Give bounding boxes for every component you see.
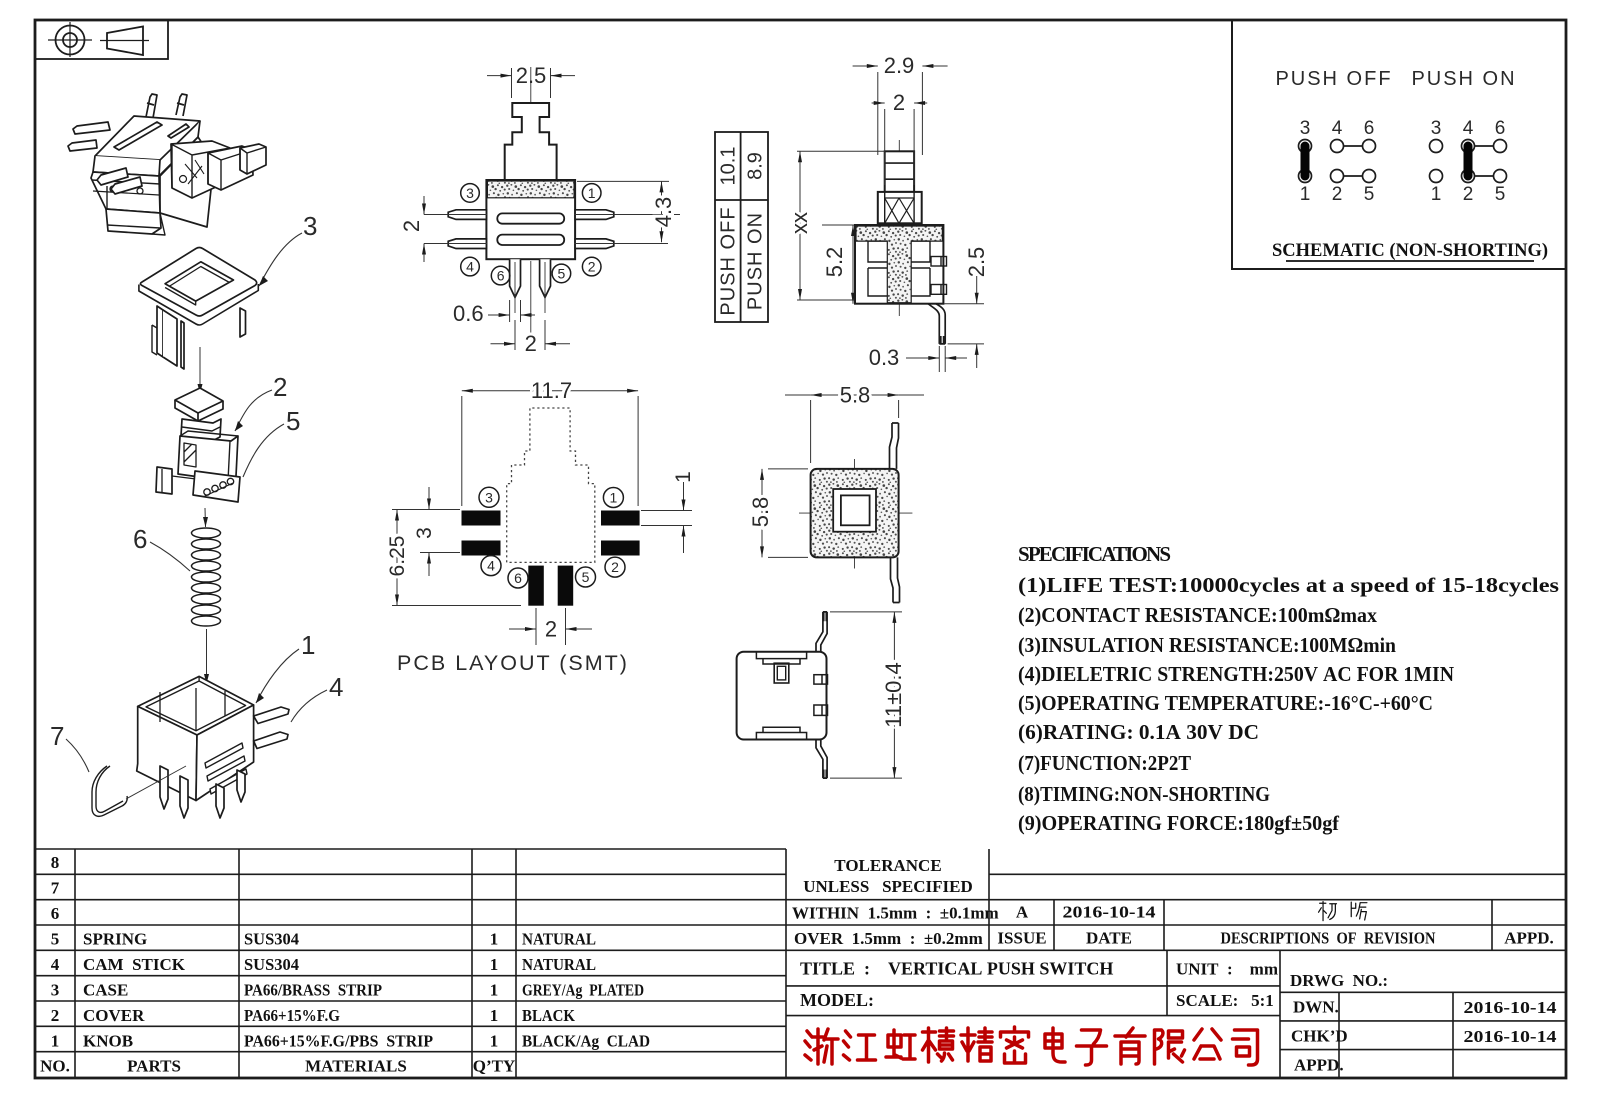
svg-text:GREY/Ag PLATED: GREY/Ag PLATED: [522, 981, 644, 1000]
svg-text:(1)LIFE TEST:10000cycles at a: (1)LIFE TEST:10000cycles at a speed of 1…: [1018, 573, 1559, 597]
svg-text:3: 3: [413, 527, 436, 539]
svg-text:2: 2: [399, 220, 424, 232]
svg-text:KNOB: KNOB: [83, 1032, 133, 1051]
svg-text:6: 6: [497, 268, 505, 284]
svg-text:BLACK/Ag CLAD: BLACK/Ag CLAD: [522, 1032, 650, 1051]
svg-text:7: 7: [50, 721, 64, 751]
svg-text:PUSH ON: PUSH ON: [1411, 68, 1516, 90]
svg-text:3: 3: [466, 185, 474, 201]
svg-text:2: 2: [1463, 184, 1474, 205]
svg-text:(6)RATING: 0.1A 30V DC: (6)RATING: 0.1A 30V DC: [1018, 720, 1259, 744]
svg-text:DRWG NO.:: DRWG NO.:: [1290, 971, 1388, 990]
svg-text:CAM STICK: CAM STICK: [83, 955, 186, 974]
svg-text:PCB LAYOUT (SMT): PCB LAYOUT (SMT): [397, 651, 629, 675]
svg-text:5.8: 5.8: [748, 497, 773, 528]
svg-text:4.3: 4.3: [651, 197, 676, 228]
svg-text:1: 1: [610, 490, 618, 506]
svg-text:SUS304: SUS304: [244, 955, 299, 974]
svg-text:PUSH OFF: PUSH OFF: [718, 206, 740, 315]
svg-text:4: 4: [1332, 118, 1343, 139]
svg-text:1: 1: [490, 1006, 499, 1025]
svg-text:APPD.: APPD.: [1294, 1056, 1344, 1075]
svg-text:2: 2: [893, 90, 905, 115]
svg-text:(3)INSULATION RESISTANCE:100MΩ: (3)INSULATION RESISTANCE:100MΩmin: [1018, 633, 1396, 657]
svg-text:SPECIFICATIONS: SPECIFICATIONS: [1018, 542, 1171, 566]
svg-text:2: 2: [1332, 184, 1343, 205]
svg-text:0.6: 0.6: [453, 301, 484, 326]
svg-text:2: 2: [588, 259, 596, 275]
svg-text:2: 2: [525, 331, 537, 356]
svg-text:ISSUE: ISSUE: [997, 929, 1046, 948]
svg-text:1: 1: [490, 955, 499, 974]
svg-text:xx: xx: [787, 212, 812, 234]
svg-text:2016-10-14: 2016-10-14: [1464, 1027, 1558, 1046]
svg-text:4: 4: [487, 558, 495, 574]
svg-text:2.9: 2.9: [884, 53, 915, 78]
svg-text:2.5: 2.5: [964, 247, 989, 278]
svg-text:SPRING: SPRING: [83, 930, 147, 949]
svg-text:CHK’D: CHK’D: [1291, 1027, 1348, 1046]
svg-text:(7)FUNCTION:2P2T: (7)FUNCTION:2P2T: [1018, 751, 1191, 775]
svg-text:1: 1: [490, 981, 499, 1000]
svg-text:NATURAL: NATURAL: [522, 955, 596, 974]
svg-text:TITLE : VERTICAL PUSH SWIT: TITLE : VERTICAL PUSH SWITCH: [800, 959, 1113, 979]
svg-text:3: 3: [303, 211, 317, 241]
svg-text:SCHEMATIC (NON-SHORTING): SCHEMATIC (NON-SHORTING): [1272, 241, 1548, 261]
svg-text:1: 1: [1300, 184, 1311, 205]
svg-text:3: 3: [1300, 118, 1311, 139]
svg-text:6: 6: [514, 570, 522, 586]
svg-text:APPD.: APPD.: [1504, 929, 1554, 948]
svg-text:1: 1: [672, 471, 695, 483]
svg-text:SCALE: 5:1: SCALE: 5:1: [1176, 991, 1274, 1010]
svg-text:4: 4: [51, 955, 60, 974]
svg-text:2: 2: [51, 1006, 60, 1025]
svg-text:PA66+15%F.G/PBS STRIP: PA66+15%F.G/PBS STRIP: [244, 1032, 433, 1051]
svg-text:DATE: DATE: [1086, 929, 1132, 948]
svg-text:2.5: 2.5: [516, 63, 547, 88]
svg-text:6: 6: [1495, 118, 1506, 139]
svg-text:(8)TIMING:NON-SHORTING: (8)TIMING:NON-SHORTING: [1018, 782, 1270, 806]
svg-text:0.3: 0.3: [869, 345, 900, 370]
svg-text:CASE: CASE: [83, 981, 128, 1000]
svg-text:WITHIN 1.5mm : ±0.1mm: WITHIN 1.5mm : ±0.1mm: [792, 904, 999, 923]
svg-text:11±0.4: 11±0.4: [881, 662, 906, 728]
svg-text:2016-10-14: 2016-10-14: [1063, 903, 1157, 922]
svg-text:1: 1: [490, 930, 499, 949]
svg-text:(2)CONTACT RESISTANCE:100mΩmax: (2)CONTACT RESISTANCE:100mΩmax: [1018, 603, 1377, 627]
svg-text:6: 6: [51, 904, 60, 923]
svg-text:8: 8: [51, 853, 60, 872]
svg-text:3: 3: [485, 489, 493, 505]
svg-text:1: 1: [588, 185, 596, 201]
svg-text:4: 4: [1463, 118, 1474, 139]
svg-text:2: 2: [611, 559, 619, 575]
svg-text:(9)OPERATING FORCE:180gf±50gf: (9)OPERATING FORCE:180gf±50gf: [1018, 811, 1340, 835]
svg-text:5: 5: [558, 265, 566, 281]
svg-text:A: A: [1016, 903, 1029, 922]
svg-text:Q’TY: Q’TY: [473, 1057, 516, 1076]
svg-text:UNIT : mm: UNIT : mm: [1176, 960, 1278, 979]
svg-text:PA66+15%F.G: PA66+15%F.G: [244, 1006, 340, 1025]
svg-text:TOLERANCE: TOLERANCE: [834, 856, 941, 875]
svg-text:(5)OPERATING TEMPERATURE:-16°C: (5)OPERATING TEMPERATURE:-16°C-+60°C: [1018, 691, 1433, 715]
svg-text:7: 7: [51, 879, 60, 898]
svg-text:PA66/BRASS STRIP: PA66/BRASS STRIP: [244, 981, 382, 1000]
svg-text:11.7: 11.7: [531, 378, 572, 403]
svg-text:10.1: 10.1: [718, 147, 740, 186]
svg-text:4: 4: [329, 672, 343, 702]
svg-text:1: 1: [1431, 184, 1442, 205]
svg-text:1: 1: [490, 1032, 499, 1051]
svg-text:5: 5: [286, 406, 300, 436]
svg-text:5: 5: [51, 930, 60, 949]
svg-text:PUSH ON: PUSH ON: [745, 212, 767, 310]
svg-text:BLACK: BLACK: [522, 1006, 576, 1025]
svg-text:MODEL:: MODEL:: [800, 990, 874, 1010]
svg-text:5: 5: [1495, 184, 1506, 205]
svg-text:DESCRIPTIONS OF REVISION: DESCRIPTIONS OF REVISION: [1221, 929, 1437, 948]
svg-text:5.2: 5.2: [822, 247, 847, 278]
svg-text:1: 1: [51, 1032, 60, 1051]
svg-text:2: 2: [273, 372, 287, 402]
svg-text:1: 1: [301, 630, 315, 660]
svg-text:2: 2: [545, 617, 557, 642]
svg-text:3: 3: [51, 981, 60, 1000]
svg-text:3: 3: [1431, 118, 1442, 139]
svg-text:4: 4: [466, 259, 474, 275]
svg-text:6: 6: [133, 524, 147, 554]
svg-text:5: 5: [582, 569, 590, 585]
svg-text:(4)DIELETRIC STRENGTH:250V AC: (4)DIELETRIC STRENGTH:250V AC FOR 1MIN: [1018, 662, 1454, 686]
svg-text:5.8: 5.8: [840, 383, 871, 408]
svg-text:DWN.: DWN.: [1293, 998, 1339, 1017]
svg-text:NO.: NO.: [40, 1057, 70, 1076]
svg-text:2016-10-14: 2016-10-14: [1464, 998, 1558, 1017]
svg-text:8.9: 8.9: [745, 152, 767, 180]
svg-text:SUS304: SUS304: [244, 930, 299, 949]
svg-text:OVER 1.5mm : ±0.2mm: OVER 1.5mm : ±0.2mm: [794, 929, 983, 948]
svg-text:6: 6: [1364, 118, 1375, 139]
svg-text:NATURAL: NATURAL: [522, 930, 596, 949]
svg-text:MATERIALS: MATERIALS: [305, 1057, 407, 1076]
svg-text:PARTS: PARTS: [127, 1057, 181, 1076]
svg-text:5: 5: [1364, 184, 1375, 205]
svg-text:PUSH OFF: PUSH OFF: [1275, 68, 1392, 90]
svg-text:COVER: COVER: [83, 1006, 145, 1025]
svg-text:6.25: 6.25: [386, 536, 409, 577]
svg-text:UNLESS SPECIFIED: UNLESS SPECIFIED: [803, 877, 973, 896]
